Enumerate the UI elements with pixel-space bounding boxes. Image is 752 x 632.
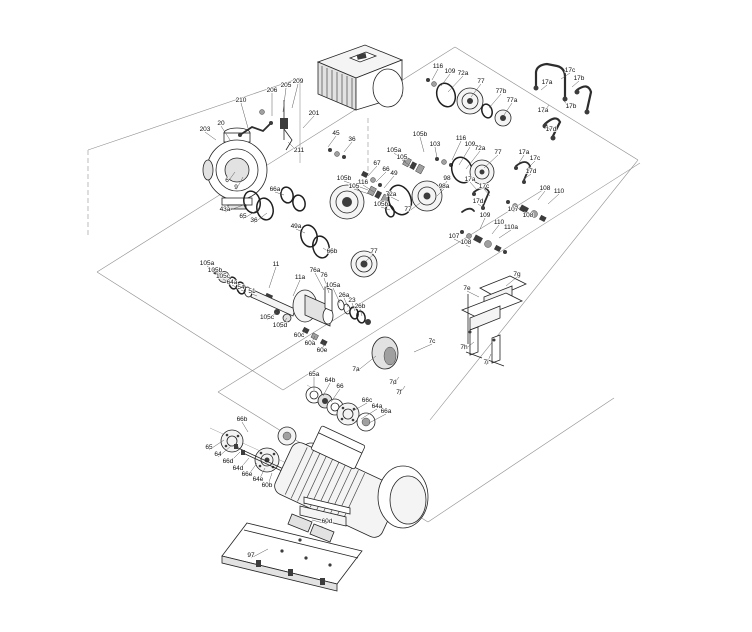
part-number-label: 105c (260, 314, 275, 321)
label-leader-line (242, 422, 248, 432)
part-number-label: 116 (433, 63, 444, 70)
label-leader-line (360, 309, 362, 316)
label-leader-line (384, 176, 394, 188)
label-leader-line (241, 103, 248, 128)
part-number-label: 77 (370, 248, 378, 255)
part-number-label: 7e (463, 285, 471, 292)
exploded-parts-diagram: 203202102062052092012116943a653666a45366… (0, 0, 752, 632)
part-number-label: 76a (310, 267, 321, 274)
part-number-label: 108 (540, 185, 551, 192)
part-number-label: 67 (373, 160, 381, 167)
part-number-label: 17a (465, 176, 476, 183)
part-number-label: 105d (273, 322, 288, 329)
label-leader-line (269, 267, 276, 288)
part-number-label: 17b (574, 75, 585, 82)
part-number-label: 205 (281, 82, 292, 89)
part-number-label: 97 (247, 552, 255, 559)
part-number-label: 105a (387, 147, 402, 154)
part-number-label: 49 (390, 170, 398, 177)
part-number-label: 209 (293, 78, 304, 85)
part-number-label: 72a (386, 191, 397, 198)
part-number-label: 65 (205, 444, 213, 451)
part-number-label: 60a (305, 340, 316, 347)
bell-housing (372, 337, 398, 369)
part-number-label: 17a (542, 79, 553, 86)
part-number-label: 36 (250, 217, 258, 224)
part-number-label: 105 (349, 183, 360, 190)
part-number-label: 51 (248, 288, 256, 295)
label-leader-line (283, 88, 286, 112)
part-number-label: 7a (352, 366, 360, 373)
label-leader-line (435, 147, 437, 158)
part-number-label: 105a (200, 260, 215, 267)
label-leader-line (303, 116, 314, 128)
part-number-label: 107 (449, 233, 460, 240)
part-number-label: 66e (242, 471, 253, 478)
part-number-label: 17b (566, 103, 577, 110)
part-number-label: 17d (473, 198, 484, 205)
part-number-label: 103 (430, 141, 441, 148)
label-leader-line (292, 84, 298, 108)
part-number-label: 17a (538, 107, 549, 114)
part-number-label: 110 (554, 188, 565, 195)
part-number-label: 105b (337, 175, 352, 182)
part-number-label: 7i (483, 359, 488, 366)
part-number-label: 66 (382, 166, 390, 173)
part-number-label: 66d (223, 458, 234, 465)
part-number-label: 6 (225, 177, 229, 184)
part-number-label: 7c (429, 338, 437, 345)
part-number-label: 77a (507, 97, 518, 104)
part-number-label: 7g (513, 271, 521, 278)
part-number-label: 54 (237, 284, 245, 291)
part-number-label: 64 (214, 451, 222, 458)
part-number-label: 60b (262, 482, 273, 489)
part-number-label: 105a (326, 282, 341, 289)
part-number-label: 20 (217, 120, 225, 127)
part-number-label: 17a (519, 149, 530, 156)
label-leader-line (499, 230, 511, 238)
part-number-label: 109 (480, 212, 491, 219)
part-number-label: 49a (291, 223, 302, 230)
part-number-label: 65a (309, 371, 320, 378)
part-number-label: 206 (267, 87, 278, 94)
part-number-label: 77 (477, 78, 485, 85)
part-number-label: 43a (220, 206, 231, 213)
bearing-disc (330, 185, 364, 219)
label-leader-line (376, 172, 386, 182)
part-number-label: 17d (546, 126, 557, 133)
label-leader-line (414, 344, 432, 352)
part-number-label: 7d (389, 379, 397, 386)
part-number-label: 98a (439, 183, 450, 190)
part-number-label: 72a (458, 70, 469, 77)
baseplate (222, 523, 362, 591)
part-number-label: 76 (320, 272, 328, 279)
part-number-label: 64a (227, 279, 238, 286)
label-leader-line (489, 94, 501, 108)
part-number-label: 66b (237, 416, 248, 423)
part-number-label: 65 (239, 213, 247, 220)
part-number-label: 110a (504, 224, 518, 231)
part-number-label: 66 (336, 383, 344, 390)
label-leader-line (448, 76, 463, 92)
part-number-label: 108 (461, 239, 472, 246)
part-number-label: 105b (374, 201, 389, 208)
part-number-label: 17c (479, 183, 490, 190)
part-number-label: 64b (325, 377, 336, 384)
part-number-label: 108 (523, 212, 534, 219)
part-number-label: 109 (445, 68, 456, 75)
mge-motor-head (318, 45, 403, 110)
part-number-label: 105b (413, 131, 428, 138)
coupling-chain-upper (306, 387, 375, 431)
guard-brackets (462, 276, 526, 366)
part-number-label: 98 (443, 175, 451, 182)
part-number-label: 110 (494, 219, 505, 226)
part-number-label: 11 (273, 261, 280, 268)
part-number-label: 45 (332, 130, 340, 137)
part-number-label: 17c (530, 155, 541, 162)
part-number-label: 203 (200, 126, 211, 133)
part-number-label: 77b (496, 88, 507, 95)
part-number-label: 210 (236, 97, 247, 104)
part-number-label: 66b (327, 248, 338, 255)
part-number-label: 66a (270, 186, 281, 193)
part-number-label: 7h (460, 344, 468, 351)
top-row-parts (426, 78, 511, 126)
part-number-label: 17d (526, 168, 537, 175)
label-leader-line (344, 142, 352, 152)
part-number-label: 60c (294, 332, 305, 339)
part-number-label: 66a (381, 408, 392, 415)
part-number-label: 60e (317, 347, 328, 354)
part-number-label: 77 (494, 149, 502, 156)
label-leader-line (492, 225, 499, 234)
label-leader-line (548, 194, 559, 204)
part-number-label: 26b (355, 303, 366, 310)
label-leader-line (470, 182, 477, 190)
part-number-label: 72a (475, 145, 486, 152)
label-leader-line (432, 69, 438, 80)
part-number-label: 17c (565, 67, 576, 74)
part-number-label: 77 (404, 206, 412, 213)
part-number-label: 60d (322, 518, 333, 525)
label-leader-line (328, 136, 336, 147)
diagram-canvas: 203202102062052092012116943a653666a45366… (0, 0, 752, 632)
part-number-label: 211 (294, 147, 305, 154)
label-leader-line (420, 137, 424, 152)
part-number-label: 9 (234, 184, 238, 191)
label-leader-line (205, 132, 216, 140)
part-number-label: 7f (396, 389, 402, 396)
label-leader-line (368, 166, 377, 176)
part-number-label: 105 (397, 154, 408, 161)
part-number-label: 11a (295, 274, 306, 281)
pump-housing (203, 128, 267, 209)
part-number-label: 201 (309, 110, 320, 117)
part-number-label: 107 (508, 206, 519, 213)
part-number-label: 36 (348, 136, 356, 143)
